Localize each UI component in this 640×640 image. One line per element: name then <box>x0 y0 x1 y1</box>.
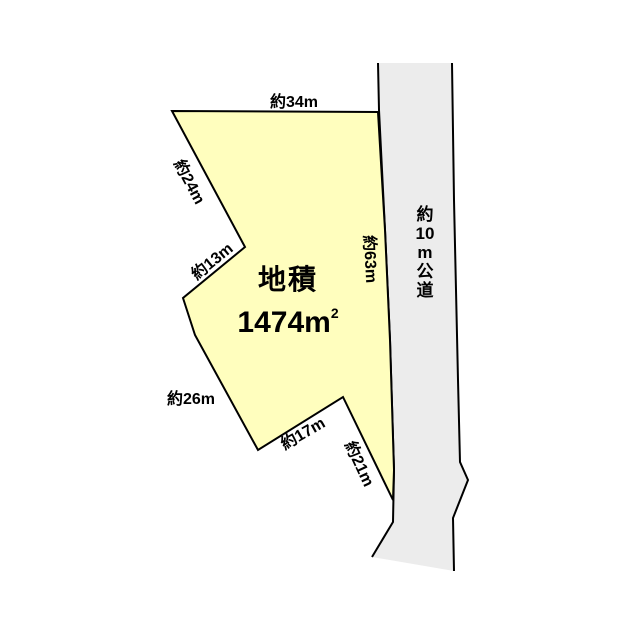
dimension-top-label: 約34m <box>270 88 318 112</box>
dimension-road-side-label: 約63m <box>359 234 385 283</box>
land-plot-diagram: 約34m 約24m 約13m 約63m 約26m 約17m 約21m 地積 14… <box>0 0 640 640</box>
dimension-lower-left-label: 約26m <box>167 385 215 409</box>
parcel-area-annotation: 地積 1474m2 <box>237 264 338 340</box>
road-label-line: m <box>416 243 435 262</box>
road-label: 約 10 m 公 道 <box>416 205 435 300</box>
area-value: 1474m2 <box>237 296 338 340</box>
road-label-line: 約 <box>416 205 435 224</box>
road-label-line: 10 <box>416 224 435 243</box>
area-superscript: 2 <box>331 305 339 321</box>
road-label-line: 公 <box>416 262 435 281</box>
road-label-line: 道 <box>416 281 435 300</box>
area-label: 地積 <box>237 264 338 296</box>
